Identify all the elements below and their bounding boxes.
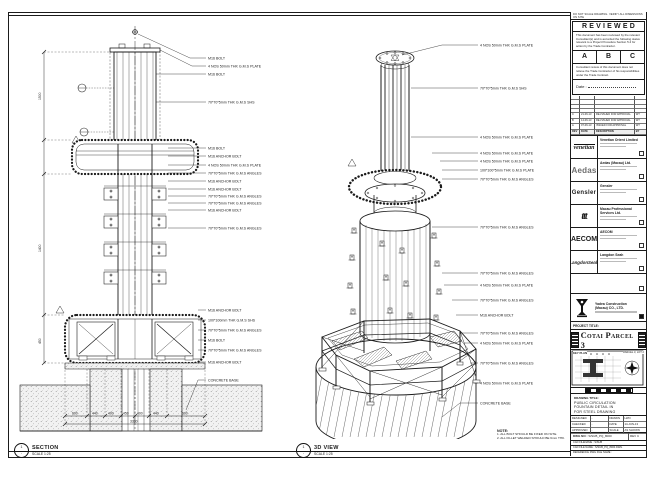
callout-label: 70*70*5mm THK G.M.S ANGLES [208, 226, 262, 230]
address-text [600, 238, 626, 240]
address-text [600, 169, 626, 171]
project-title: Cotai Parcel 3 [581, 330, 637, 350]
contractor-logo-icon [574, 298, 590, 318]
address-text [600, 166, 637, 168]
status-box-c: C [621, 51, 644, 63]
consultant-row-venetian: venetian Venetian Orient Limited [571, 136, 646, 159]
status-checkbox-icon [639, 151, 645, 157]
venetian-logo: venetian [574, 144, 595, 151]
status-checkbox-icon [639, 220, 645, 226]
callout-label: M16 ANCHOR BOLT [208, 154, 242, 158]
dim-label: 1400 [38, 244, 42, 252]
consultant-name: Gensler [600, 184, 644, 188]
callout-label: M16 BOLT [208, 56, 226, 60]
callout-label: M16 ANCHOR BOLT [480, 313, 514, 317]
callout-label: 4 NOS 50mm THK G.M.S PLATE [480, 159, 534, 163]
ornament-column-icon [638, 332, 646, 348]
address-text [600, 258, 637, 260]
callout-label: 70*70*5mm THK G.M.S ANGLES [480, 361, 534, 365]
address-text [600, 216, 637, 218]
consultant-row-langdon-seah: LangdonSeah Langdon Seah [571, 251, 646, 274]
callout-label: CONCRETE BASE [480, 401, 511, 405]
ornament-column-icon [571, 332, 579, 348]
dim-total-label: 3330 [130, 420, 138, 424]
dwg-rev: REV C [628, 433, 646, 440]
callout-label: 100*100*5mm THK G.M.S PLATE [480, 168, 535, 172]
drawing-sheet: { "sheet": { "left_view": { "bubble_top"… [0, 0, 650, 488]
aedas-logo: Aedas [571, 166, 596, 175]
status-checkbox-icon [639, 266, 645, 272]
callout-label: M16 ANCHOR BOLT [208, 187, 242, 191]
isometric-drawing: 4 NOS 50mm THK G.M.S PLATE 70*70*5mm THK… [292, 25, 564, 439]
callout-label: 70*70*5mm THK G.M.S ANGLES [208, 328, 262, 332]
project-title-box: Cotai Parcel 3 [571, 330, 646, 350]
dim-label: 450 [123, 412, 129, 416]
reviewed-title: REVIEWED [573, 22, 644, 32]
key-plan-parcel-label: PARCEL 3, LOT 2 [623, 351, 644, 354]
consultant-row-gensler: Gensler Gensler [571, 182, 646, 205]
section-view-title: 1 - SECTION SCALE 1:25 [14, 443, 59, 458]
drawing-title-line: FOR STEEL DRAWING [574, 410, 643, 415]
reviewed-date-row: Date : [573, 79, 644, 91]
dim-label: 440 [153, 412, 159, 416]
bubble-sheet: - [297, 450, 310, 456]
drawing-title-box: DRAWING TITLE: PUBLIC CIRCULATION FOUNTA… [571, 394, 646, 416]
view-title-text: SECTION [32, 445, 59, 452]
address-text [600, 189, 637, 191]
bubble-sheet: - [15, 450, 28, 456]
address-text [595, 311, 637, 313]
address-text [600, 219, 626, 221]
callout-label: 70*70*5mm THK G.M.S ANGLES [480, 225, 534, 229]
view-scale-text: SCALE 1:25 [314, 452, 339, 456]
status-checkbox-icon [639, 286, 645, 292]
callout-label: 70*70*5mm THK G.M.S ANGLES [480, 177, 534, 181]
dim-label: 450 [38, 338, 42, 344]
date-label: Date : [576, 84, 587, 89]
reviewed-paragraph: This document has been reviewed by the r… [573, 32, 644, 50]
consultant-row-macau-professional: ttt Macau Professional Services Ltd. [571, 205, 646, 228]
titleblock-top-note: DO NOT SCALE DRAWING. VERIFY ALL DIMENSI… [571, 12, 646, 20]
3d-view-title: 1 - 3D VIEW SCALE 1:25 [296, 443, 339, 458]
consultant-name: Macau Professional Services Ltd. [600, 207, 644, 215]
status-checkbox-icon [639, 314, 645, 320]
address-text [600, 261, 626, 263]
consultant-name: Aedas (Macau) Ltd. [600, 161, 644, 165]
callout-label: 70*70*5mm THK G.M.S ANGLES [208, 201, 262, 205]
consultant-row-aecom: AECOM AECOM [571, 228, 646, 251]
dim-label: 440 [92, 412, 98, 416]
address-text [600, 146, 626, 148]
callout-label: 4 NOS 50mm THK G.M.S PLATE [480, 43, 534, 47]
contractor-name: (Macau) CO., LTD. [595, 306, 644, 310]
callout-label: 70*70*5mm THK G.M.S ANGLES [480, 331, 534, 335]
revision-table: C21-06-13 RE-ISSUED FOR APPROVALWT B14-0… [571, 96, 646, 136]
callout-label: 4 NOS 50mm THK G.M.S PLATE [208, 64, 262, 68]
title-block: DO NOT SCALE DRAWING. VERIFY ALL DIMENSI… [571, 12, 646, 456]
consultant-name: Langdon Seah [600, 253, 644, 257]
callout-label: M16 BOLT [208, 338, 226, 342]
callout-label: 70*70*5mm THK G.M.S ANGLES [208, 194, 262, 198]
border-inner-top [8, 15, 646, 16]
dim-label: 400 [137, 412, 143, 416]
dwg-number: S/SUB_PQ_8000 [588, 434, 611, 438]
drawing-title-label: DRAWING TITLE: [574, 396, 643, 400]
status-box-b: B [597, 51, 621, 63]
section-bubble-icon: 1 - [14, 443, 29, 458]
consultant-row-aedas: Aedas Aedas (Macau) Ltd. [571, 159, 646, 182]
ttt-logo: ttt [581, 211, 586, 222]
callout-label: 70*70*5mm THK G.M.S ANGLES [208, 348, 262, 352]
callout-label: M16 ANCHOR BOLT [208, 308, 242, 312]
aecom-logo: AECOM [571, 236, 597, 243]
callout-label: 4 NOS 50mm THK G.M.S PLATE [208, 163, 262, 167]
dim-label: 600 [182, 412, 188, 416]
view-bubble-icon: 1 - [296, 443, 311, 458]
key-plan: KEY PLAN PARCEL 3, LOT 2 [571, 350, 646, 388]
status-checkbox-icon [639, 174, 645, 180]
dim-label: 600 [72, 412, 78, 416]
callout-label: 4 NOS 50mm THK G.M.S PLATE [480, 381, 534, 385]
callout-label: 100*100mm THK G.M.S SHS [208, 318, 256, 322]
dim-label: 1500 [38, 92, 42, 100]
callout-label: M16 ANCHOR BOLT [208, 360, 242, 364]
status-checkbox-icon [639, 197, 645, 203]
dwg-label: DWG NO : [573, 434, 588, 438]
note-line: 2. ALL FILLET WELDED SHOULD BE 6mm THK. [497, 437, 569, 441]
contractor-box: Yadea Construction (Macau) CO., LTD. [571, 294, 646, 322]
section-drawing: M16 BOLT 4 NOS 50mm THK G.M.S PLATE M16 … [10, 20, 286, 444]
dim-label: 400 [108, 412, 114, 416]
fields-table: DESIGNED- DRAWNLWO CHECKED- DATE14-JUN-1… [571, 416, 646, 433]
revision-header: REVDATE DESCRIPTIONBY [571, 130, 646, 136]
status-box-a: A [573, 51, 597, 63]
callout-label: 70*70*5mm THK G.M.S ANGLES [208, 171, 262, 175]
callout-label: M16 BOLT [208, 146, 226, 150]
callout-label: 4 NOS 50mm THK G.M.S PLATE [480, 283, 534, 287]
notes: NOTE: 1. ALL BOLT SHOULD BE FIXED ON SIT… [497, 429, 569, 441]
callout-label: 4 NOS 50mm THK G.M.S PLATE [480, 135, 534, 139]
callout-label: 4 NOS 50mm THK G.M.S PLATE [480, 341, 534, 345]
gensler-logo: Gensler [572, 190, 596, 196]
address-text [600, 192, 626, 194]
reviewed-stamp: REVIEWED This document has been reviewed… [572, 21, 645, 95]
address-text [600, 143, 637, 145]
cad-filename-row: REFERENCE DWG FILE NAME : [571, 451, 646, 456]
callout-label: 70*70*5mm THK G.M.S SHS [480, 86, 527, 90]
callout-label: 4 NOS 50mm THK G.M.S PLATE [480, 151, 534, 155]
dwg-number-row: DWG NO : S/SUB_PQ_8000 REV C [571, 433, 646, 441]
empty-box [571, 274, 646, 294]
status-checkbox-icon [639, 243, 645, 249]
langdon-seah-logo: LangdonSeah [571, 260, 598, 265]
callout-label: 70*70*5mm THK G.M.S ANGLES [480, 298, 534, 302]
consultant-name: AECOM [600, 230, 644, 234]
callout-label: M16 ANCHOR BOLT [208, 208, 242, 212]
callout-label: CONCRETE BASE [208, 378, 239, 382]
consultant-name: Venetian Orient Limited [600, 138, 644, 142]
key-plan-map [571, 350, 644, 386]
reviewed-paragraph: Consultant review of this document does … [573, 64, 644, 79]
address-text [600, 235, 637, 237]
view-title-text: 3D VIEW [314, 445, 339, 452]
callout-label: 70*70*5mm THK G.M.S ANGLES [480, 271, 534, 275]
key-plan-label: KEY PLAN [573, 351, 587, 355]
callout-label: 70*70*5mm THK G.M.S SHS [208, 100, 255, 104]
view-scale-text: SCALE 1:25 [32, 452, 59, 456]
callout-label: M16 BOLT [208, 72, 226, 76]
reviewed-status-boxes: A B C [573, 50, 644, 64]
callout-label: M16 ANCHOR BOLT [208, 179, 242, 183]
